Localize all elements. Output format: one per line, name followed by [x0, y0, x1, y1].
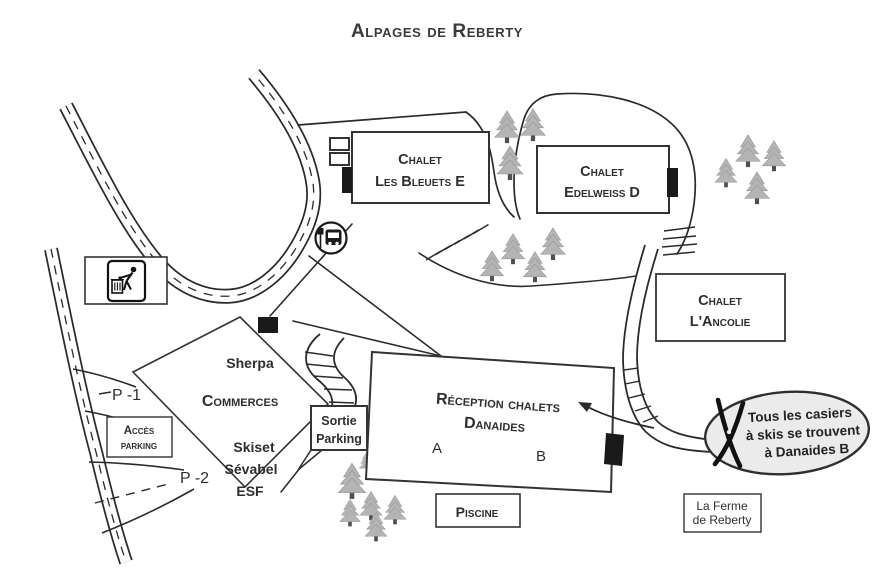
- svg-text:L'Ancolie: L'Ancolie: [690, 314, 751, 330]
- shop-sevabel: Sévabel: [225, 461, 278, 477]
- bus-stop-icon: [316, 223, 347, 254]
- map-title: Alpages de Reberty: [351, 21, 523, 42]
- svg-text:Chalet: Chalet: [580, 164, 624, 180]
- parking-level-2-label: P -2: [180, 470, 209, 487]
- commerces-title: Commerces: [202, 393, 278, 410]
- junction-marker: [258, 317, 278, 333]
- danaides-wing-a: A: [432, 440, 442, 457]
- shop-esf: ESF: [236, 483, 264, 499]
- piscine-label: Piscine: [456, 504, 499, 520]
- svg-text:Accès: Accès: [124, 425, 155, 437]
- svg-text:Parking: Parking: [316, 432, 362, 446]
- svg-text:de Reberty: de Reberty: [693, 513, 752, 527]
- svg-text:parking: parking: [121, 440, 157, 452]
- svg-text:Les Bleuets E: Les Bleuets E: [375, 174, 465, 190]
- svg-text:Sortie: Sortie: [321, 414, 356, 428]
- svg-text:Chalet: Chalet: [398, 152, 442, 168]
- svg-text:Edelweiss D: Edelweiss D: [564, 185, 640, 201]
- svg-text:Chalet: Chalet: [698, 293, 742, 309]
- svg-text:La Ferme: La Ferme: [696, 499, 748, 513]
- resort-map: Alpages de Reberty Chalet Les Bleuets E …: [0, 0, 875, 575]
- waste-disposal-icon: [108, 261, 145, 301]
- parking-level-1-label: P -1: [112, 387, 141, 404]
- container-boxes: [330, 138, 349, 165]
- shop-skiset: Skiset: [233, 439, 275, 455]
- ferme-label: La Ferme de Reberty: [693, 499, 752, 527]
- shop-sherpa: Sherpa: [226, 355, 274, 371]
- danaides-wing-b: B: [536, 448, 546, 465]
- stairs-hatch-bus: [426, 225, 489, 261]
